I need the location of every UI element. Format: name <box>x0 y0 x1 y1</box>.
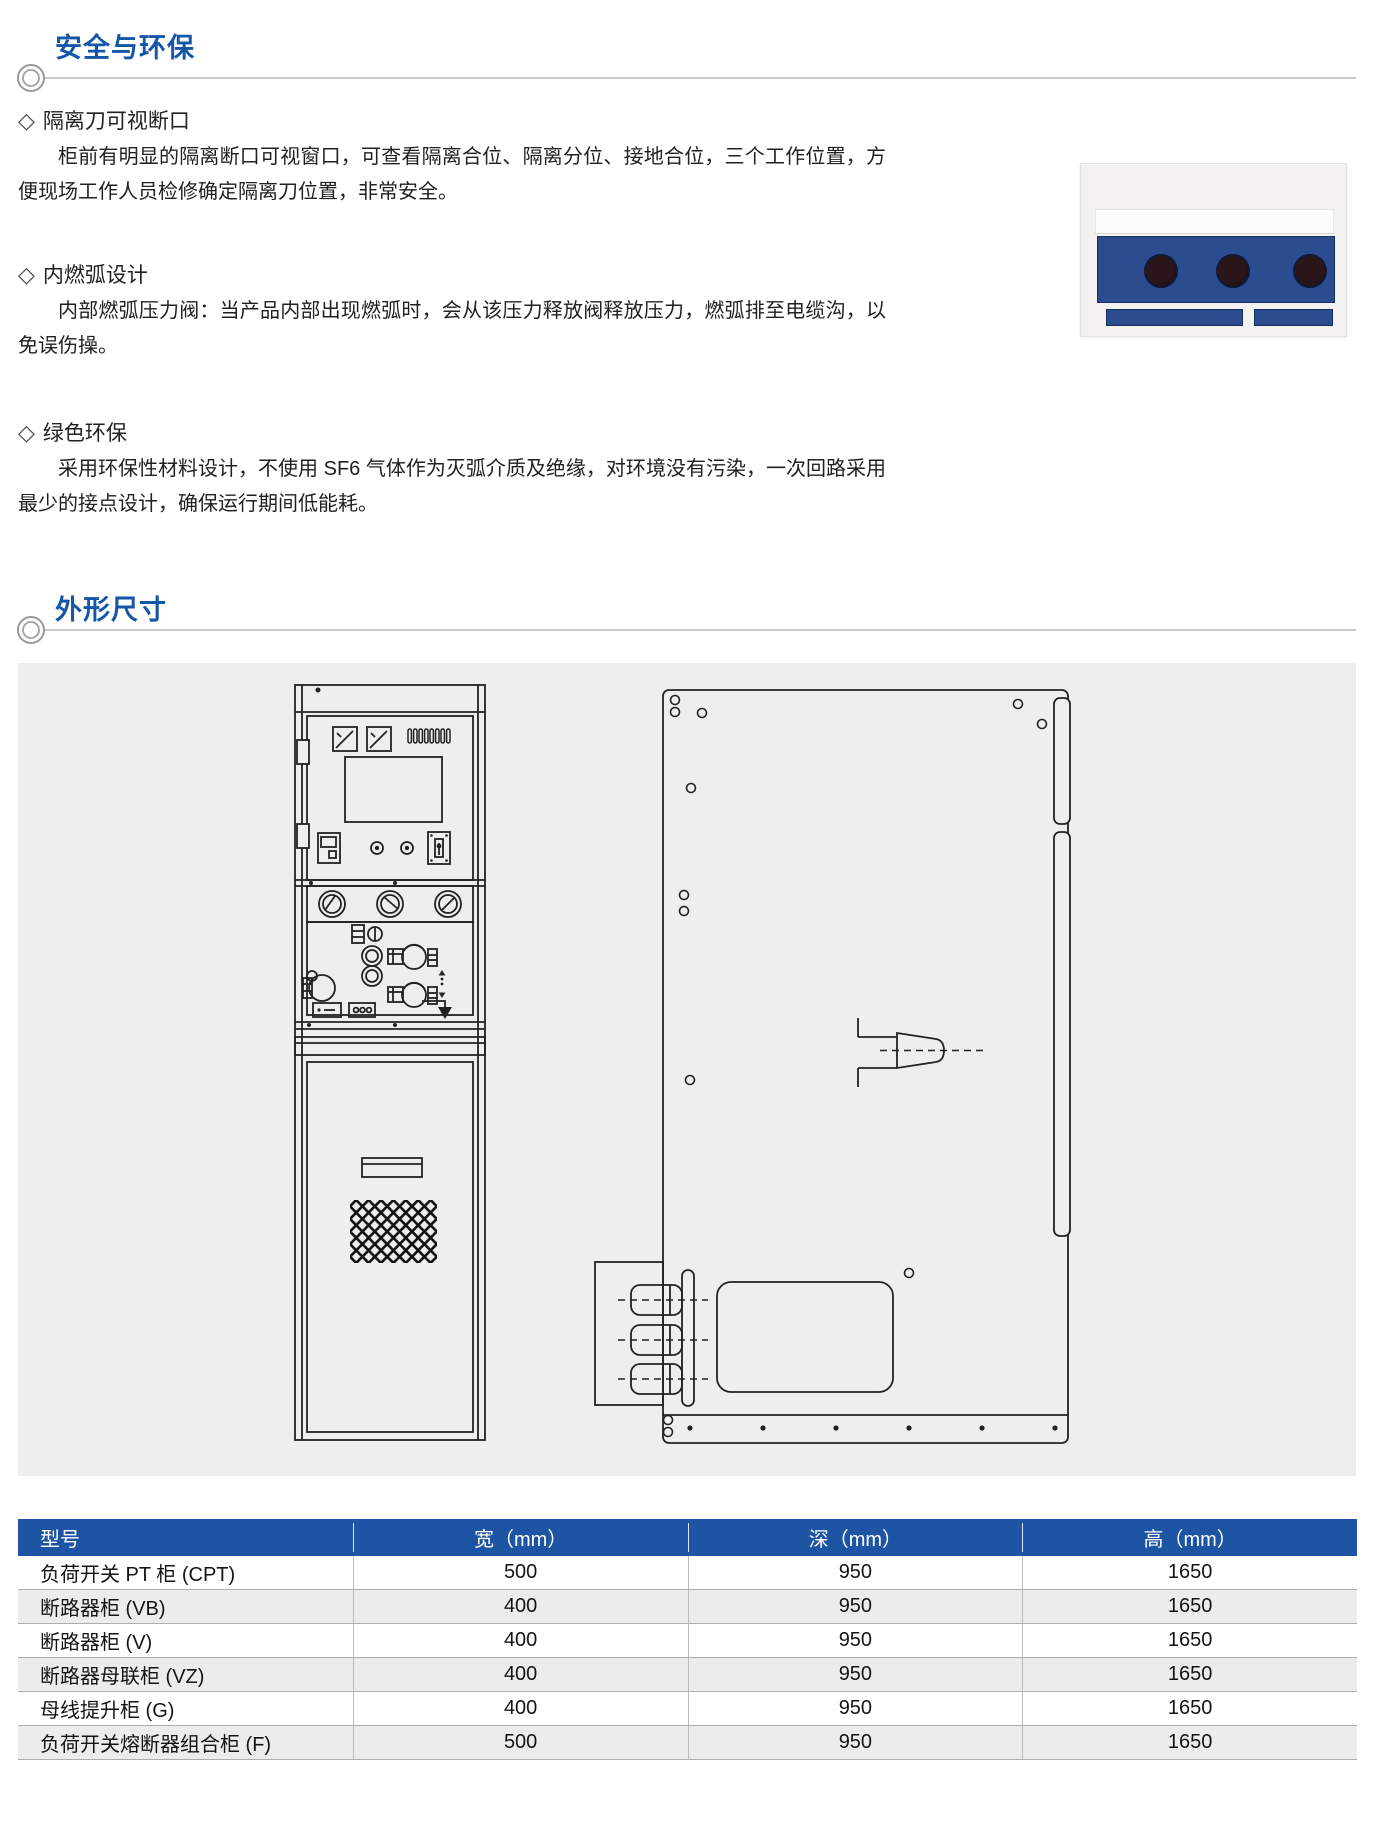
ventilation-grille <box>350 1200 437 1263</box>
viewing-window <box>1216 254 1250 288</box>
section-divider <box>44 629 1356 631</box>
dimension-cell: 1650 <box>1022 1658 1357 1691</box>
isolation-window-photo <box>1080 163 1347 337</box>
model-cell: 负荷开关熔断器组合柜 (F) <box>18 1728 353 1757</box>
dimension-cell: 400 <box>353 1624 688 1657</box>
diamond-bullet-icon: ◇ <box>18 108 35 133</box>
catalog-page: 安全与环保 ◇隔离刀可视断口 柜前有明显的隔离断口可视窗口，可查看隔离合位、隔离… <box>0 0 1373 1848</box>
dimension-cell: 1650 <box>1022 1556 1357 1589</box>
dimension-cell: 1650 <box>1022 1590 1357 1623</box>
diamond-bullet-icon: ◇ <box>18 262 35 287</box>
model-cell: 母线提升柜 (G) <box>18 1694 353 1723</box>
paragraph: 柜前有明显的隔离断口可视窗口，可查看隔离合位、隔离分位、接地合位，三个工作位置，… <box>18 140 886 210</box>
paragraph: 内部燃弧压力阀：当产品内部出现燃弧时，会从该压力释放阀释放压力，燃弧排至电缆沟，… <box>18 294 886 364</box>
dimensions-table: 型号宽（mm）深（mm）高（mm） 负荷开关 PT 柜 (CPT)5009501… <box>18 1519 1357 1760</box>
photo-blue-bar <box>1106 309 1243 326</box>
bullet-heading-label: 绿色环保 <box>43 422 127 445</box>
dimension-cell: 950 <box>688 1658 1023 1691</box>
viewing-window <box>1293 254 1327 288</box>
photo-panel-strip <box>1095 209 1334 234</box>
section-marker-icon <box>17 64 45 92</box>
model-cell: 断路器母联柜 (VZ) <box>18 1660 353 1689</box>
photo-blue-bar <box>1254 309 1333 326</box>
dimension-cell: 500 <box>353 1726 688 1759</box>
column-header: 高（mm） <box>1022 1523 1357 1552</box>
dimension-cell: 950 <box>688 1726 1023 1759</box>
operating-shaft-detail <box>858 1018 985 1087</box>
dimension-cell: 1650 <box>1022 1726 1357 1759</box>
bullet-heading-label: 内燃弧设计 <box>43 264 148 287</box>
table-body: 负荷开关 PT 柜 (CPT)5009501650断路器柜 (VB)400950… <box>18 1556 1357 1760</box>
dimension-cell: 950 <box>688 1692 1023 1725</box>
bullet-heading: ◇内燃弧设计 <box>18 259 148 289</box>
dimension-cell: 500 <box>353 1556 688 1589</box>
dimension-cell: 950 <box>688 1590 1023 1623</box>
dimension-cell: 1650 <box>1022 1692 1357 1725</box>
cabinet-drawings <box>18 663 1356 1476</box>
column-header: 型号 <box>18 1523 353 1552</box>
bullet-heading: ◇绿色环保 <box>18 417 127 447</box>
dimension-cell: 950 <box>688 1624 1023 1657</box>
column-header: 深（mm） <box>688 1523 1023 1552</box>
section-title-safety: 安全与环保 <box>55 26 195 65</box>
column-header: 宽（mm） <box>353 1523 688 1552</box>
table-row: 负荷开关 PT 柜 (CPT)5009501650 <box>18 1556 1357 1590</box>
dimension-cell: 400 <box>353 1692 688 1725</box>
table-row: 母线提升柜 (G)4009501650 <box>18 1692 1357 1726</box>
table-row: 断路器柜 (VB)4009501650 <box>18 1590 1357 1624</box>
cable-compartment <box>717 1282 893 1392</box>
table-header-row: 型号宽（mm）深（mm）高（mm） <box>18 1519 1357 1556</box>
table-row: 断路器柜 (V)4009501650 <box>18 1624 1357 1658</box>
table-row: 断路器母联柜 (VZ)4009501650 <box>18 1658 1357 1692</box>
model-cell: 断路器柜 (V) <box>18 1626 353 1655</box>
section-title-dimensions: 外形尺寸 <box>55 588 167 627</box>
dimension-cell: 950 <box>688 1556 1023 1589</box>
model-cell: 断路器柜 (VB) <box>18 1592 353 1621</box>
cable-bushings <box>595 1262 708 1406</box>
table-row: 负荷开关熔断器组合柜 (F)5009501650 <box>18 1726 1357 1760</box>
dimension-cell: 400 <box>353 1590 688 1623</box>
section-divider <box>44 77 1356 79</box>
side-view-drawing <box>595 690 1070 1443</box>
front-view-drawing <box>295 685 485 1440</box>
section-marker-icon <box>17 616 45 644</box>
bullet-heading-label: 隔离刀可视断口 <box>43 110 190 133</box>
photo-blue-panel <box>1097 236 1335 303</box>
dimension-cell: 400 <box>353 1658 688 1691</box>
viewing-window <box>1144 254 1178 288</box>
diamond-bullet-icon: ◇ <box>18 420 35 445</box>
model-cell: 负荷开关 PT 柜 (CPT) <box>18 1558 353 1587</box>
bullet-heading: ◇隔离刀可视断口 <box>18 105 190 135</box>
paragraph: 采用环保性材料设计，不使用 SF6 气体作为灭弧介质及绝缘，对环境没有污染，一次… <box>18 452 886 522</box>
dimension-cell: 1650 <box>1022 1624 1357 1657</box>
dimension-drawing-panel <box>18 663 1356 1476</box>
